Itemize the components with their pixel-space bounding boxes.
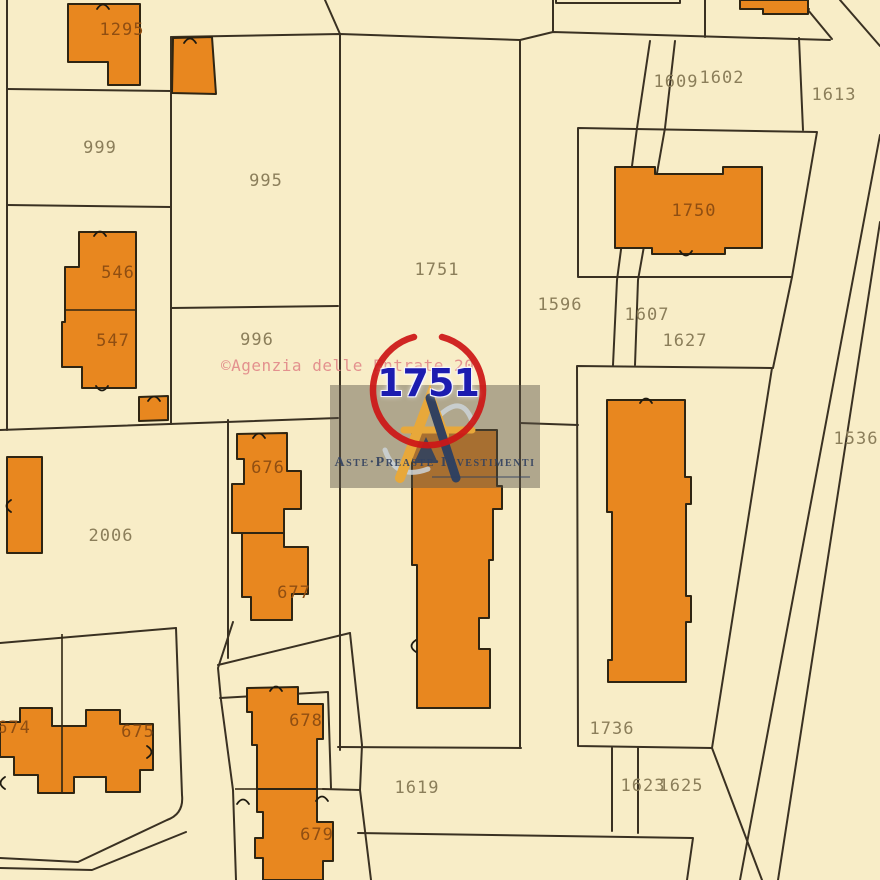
parcel-label-1619: 1619 xyxy=(395,778,440,798)
parcel-label-1627: 1627 xyxy=(663,331,708,351)
parcel-label-1609: 1609 xyxy=(654,72,699,92)
parcel-label-1613: 1613 xyxy=(812,85,857,105)
parcel-label-996: 996 xyxy=(240,330,274,350)
parcel-label-1536: 1536 xyxy=(834,429,879,449)
parcel-label-2006: 2006 xyxy=(89,526,134,546)
parcel-label-1625: 1625 xyxy=(659,776,704,796)
parcel-label-995: 995 xyxy=(249,171,283,191)
building-label-678: 678 xyxy=(289,711,323,731)
cadastral-map: 9999959962006175115961607162716091602161… xyxy=(0,0,880,880)
building-label-675: 675 xyxy=(121,722,155,742)
parcel-label-1736: 1736 xyxy=(590,719,635,739)
brand-underline xyxy=(432,476,530,478)
parcel-label-1607: 1607 xyxy=(625,305,670,325)
building-label-547: 547 xyxy=(96,331,130,351)
highlighted-parcel-number: 1751 xyxy=(377,361,479,405)
building-label-674: 674 xyxy=(0,718,31,738)
building-label-1750: 1750 xyxy=(672,201,717,221)
building-label-676: 676 xyxy=(251,458,285,478)
building-label-679: 679 xyxy=(300,825,334,845)
parcel-label-999: 999 xyxy=(83,138,117,158)
building-label-546: 546 xyxy=(101,263,135,283)
parcel-label-1602: 1602 xyxy=(700,68,745,88)
parcel-label-1596: 1596 xyxy=(538,295,583,315)
parcel-label-1751: 1751 xyxy=(415,260,460,280)
building-label-1295: 1295 xyxy=(100,20,145,40)
building-label-677: 677 xyxy=(277,583,311,603)
agency-brand-name: Aste·Preaste·Investimenti xyxy=(330,455,540,471)
